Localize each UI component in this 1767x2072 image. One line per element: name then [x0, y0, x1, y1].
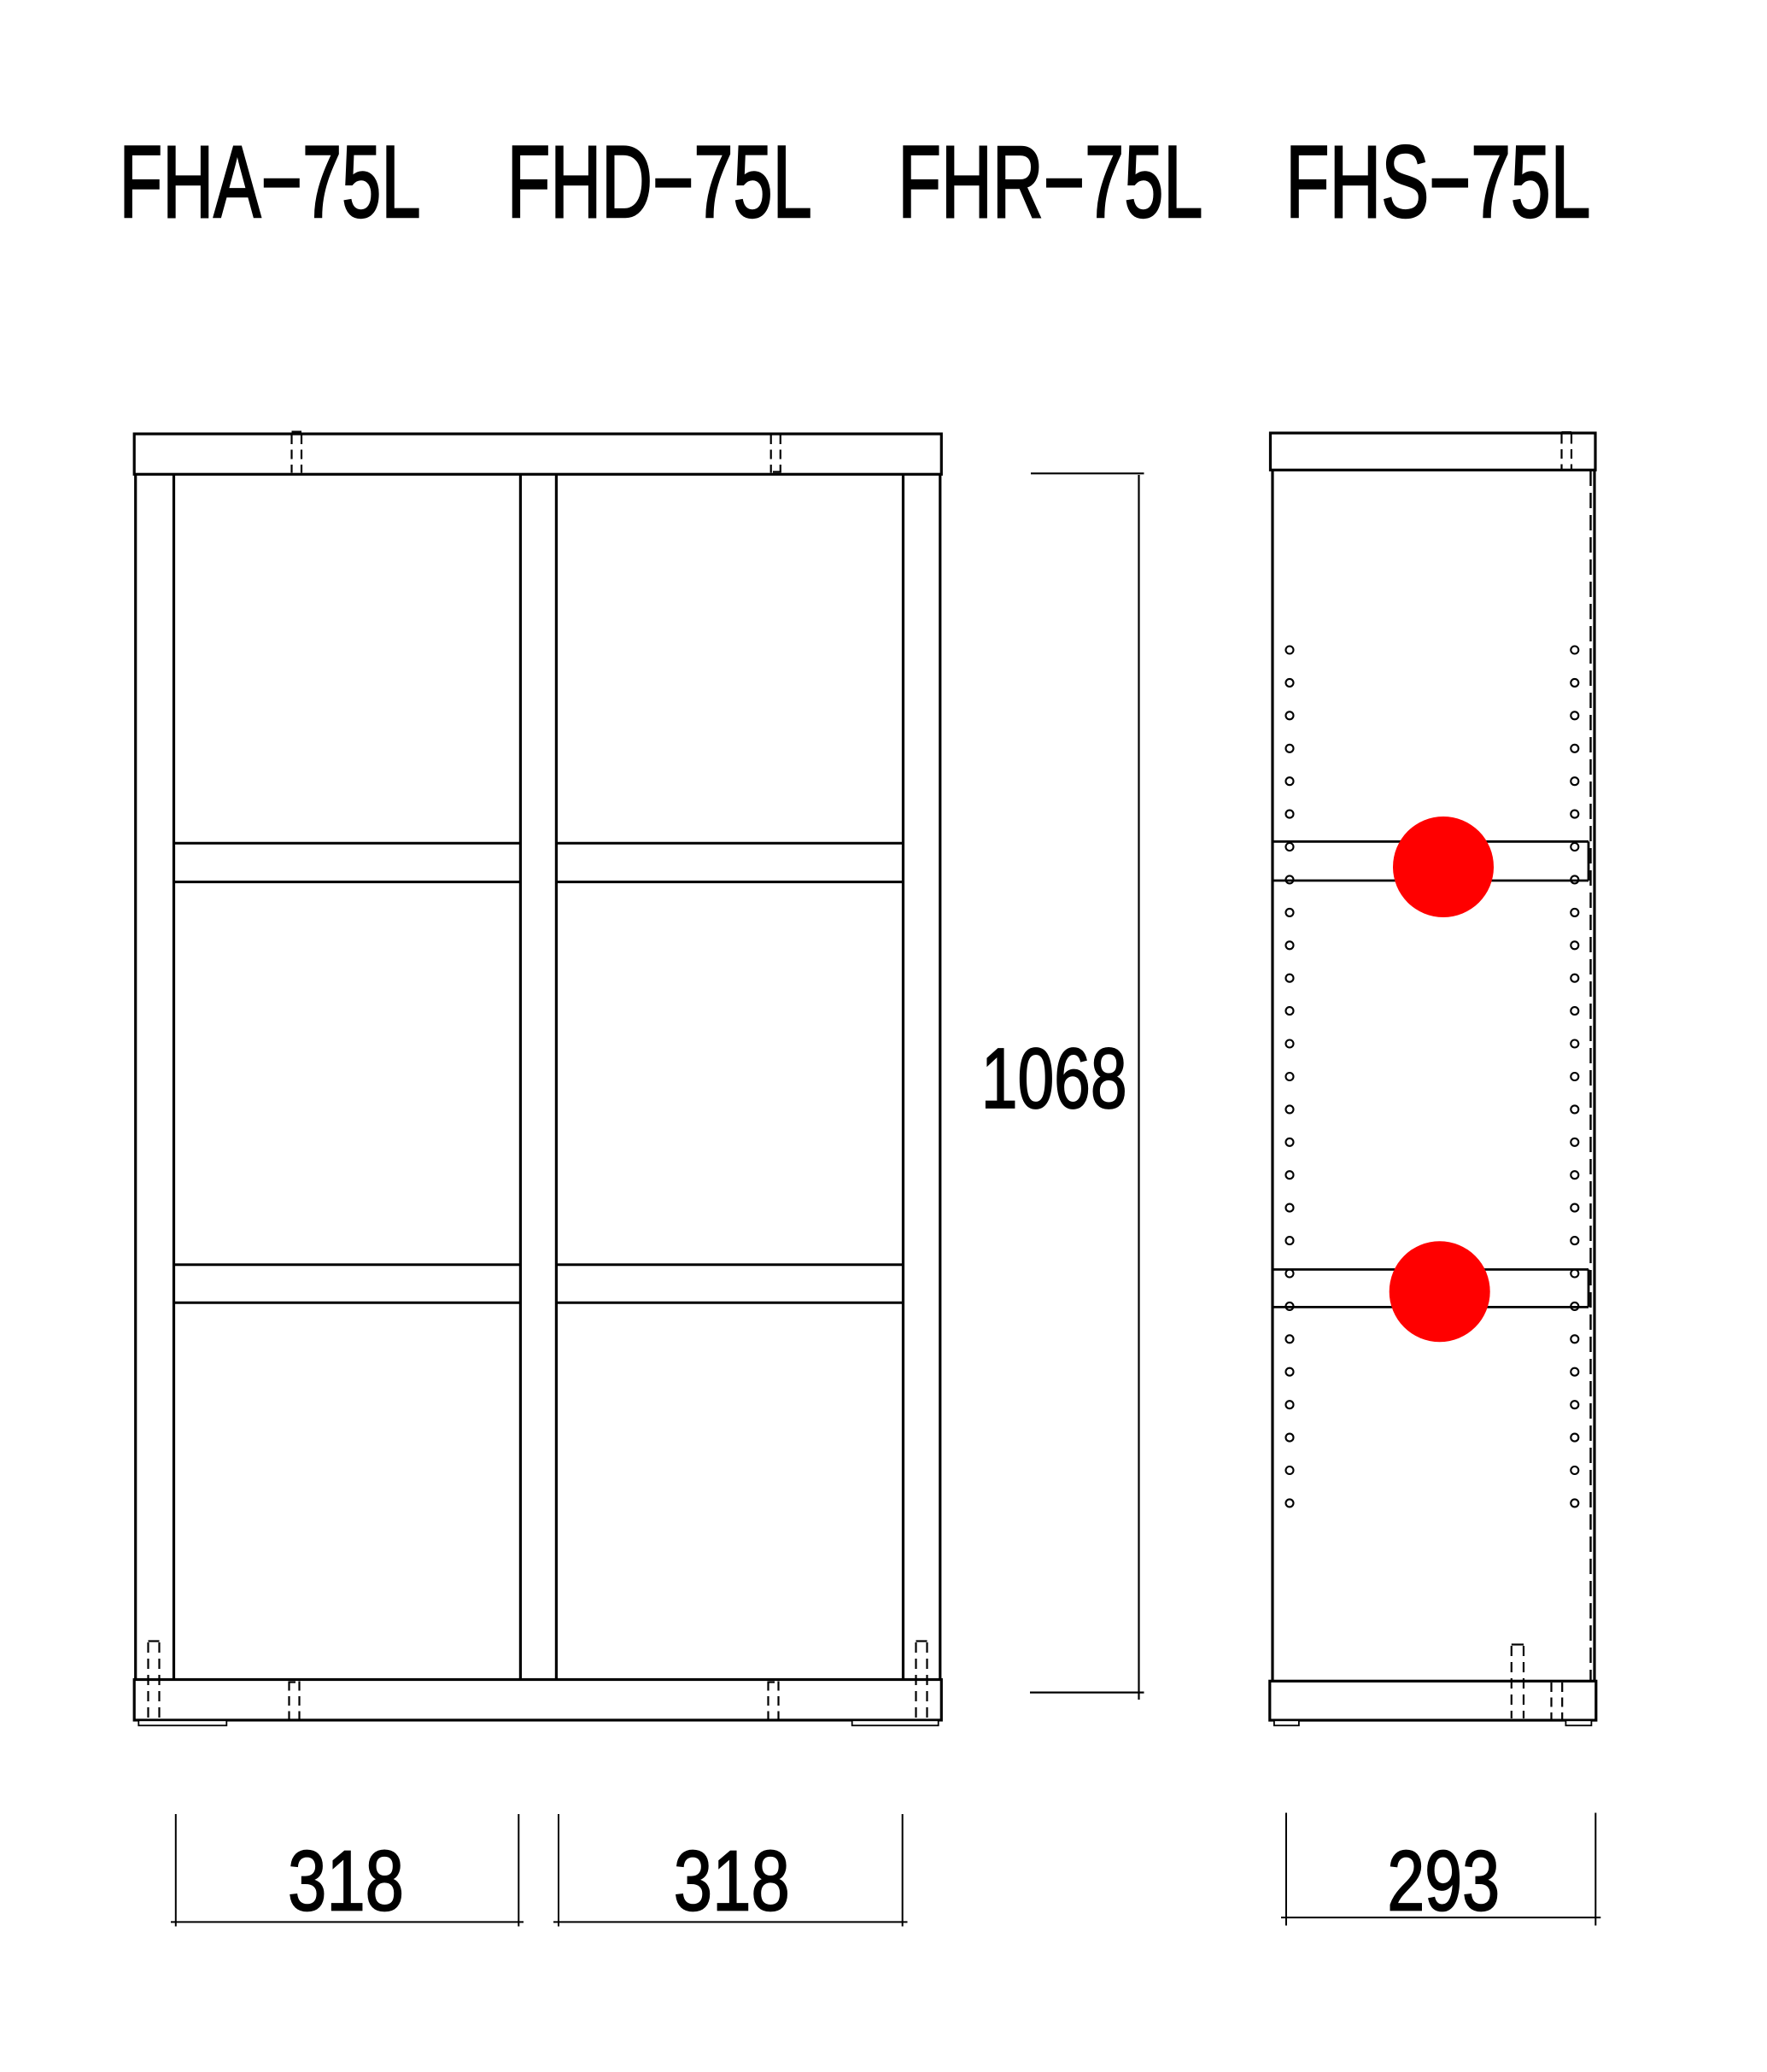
svg-text:318: 318	[288, 1834, 404, 1929]
svg-text:FHD−75L: FHD−75L	[507, 125, 812, 239]
svg-text:FHR−75L: FHR−75L	[898, 125, 1202, 239]
svg-text:FHS−75L: FHS−75L	[1285, 125, 1590, 239]
svg-text:318: 318	[674, 1834, 790, 1929]
svg-text:FHA−75L: FHA−75L	[120, 125, 421, 239]
svg-text:293: 293	[1387, 1834, 1500, 1929]
svg-text:1068: 1068	[981, 1031, 1127, 1127]
